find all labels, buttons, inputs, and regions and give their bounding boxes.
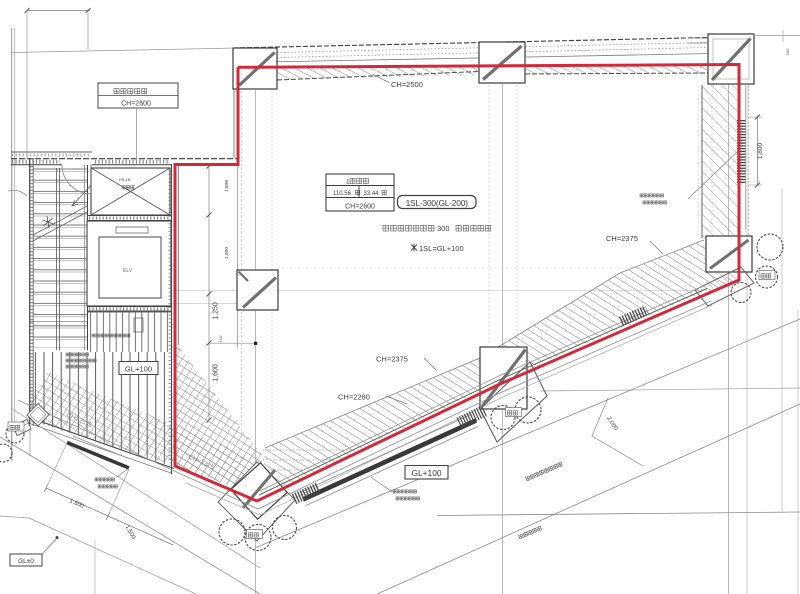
- svg-text:CH=2375: CH=2375: [606, 234, 638, 243]
- svg-text:500: 500: [785, 48, 790, 55]
- svg-text:1,800: 1,800: [224, 247, 230, 259]
- svg-text:CH=2280: CH=2280: [338, 393, 370, 402]
- svg-text:33.44: 33.44: [363, 191, 379, 197]
- svg-text:GL±0: GL±0: [18, 558, 34, 565]
- svg-text:CH=2600: CH=2600: [345, 204, 375, 211]
- svg-text:CH=2600: CH=2600: [121, 101, 151, 108]
- svg-text:300: 300: [437, 224, 450, 233]
- svg-text:2,000: 2,000: [605, 416, 618, 432]
- svg-text:CH=2500: CH=2500: [391, 80, 423, 89]
- svg-text:GL+100: GL+100: [125, 365, 152, 374]
- svg-text:1,600: 1,600: [68, 498, 85, 510]
- svg-text:110.56: 110.56: [333, 191, 352, 197]
- svg-text:150: 150: [218, 335, 223, 342]
- svg-text:1,500: 1,500: [124, 524, 137, 541]
- svg-text:PS-1B: PS-1B: [119, 177, 131, 182]
- svg-text:1,600: 1,600: [213, 364, 220, 382]
- svg-text:1,800: 1,800: [224, 180, 230, 192]
- svg-text:1,800: 1,800: [757, 142, 764, 159]
- svg-text:GL+100: GL+100: [411, 468, 441, 478]
- svg-text:1,250: 1,250: [213, 302, 220, 320]
- svg-text:ELV: ELV: [123, 268, 133, 274]
- svg-text:1: 1: [346, 179, 350, 186]
- svg-text:CH=2375: CH=2375: [376, 355, 408, 364]
- svg-text:1SL=GL+100: 1SL=GL+100: [419, 244, 464, 253]
- svg-text:1SL-300(GL-200): 1SL-300(GL-200): [406, 198, 469, 208]
